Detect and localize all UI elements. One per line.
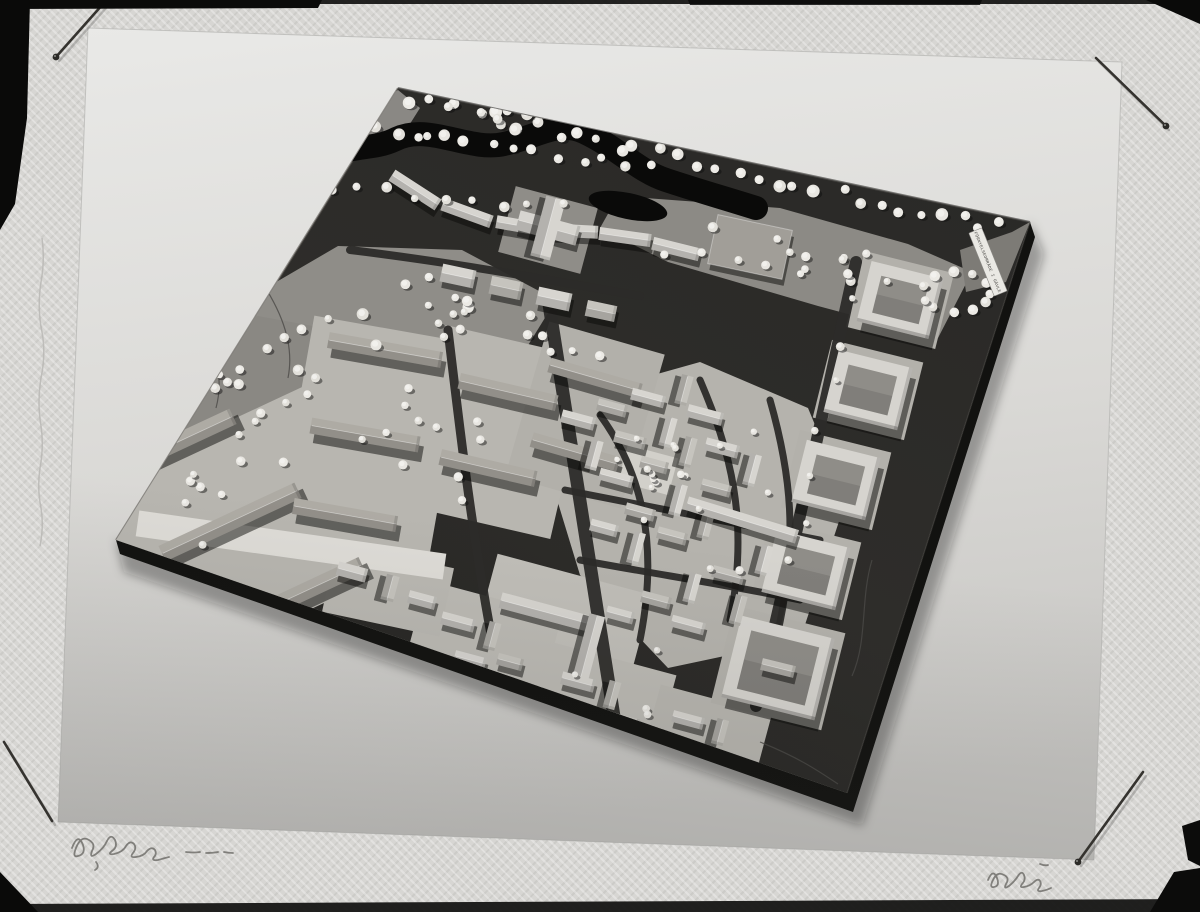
scan-mark [0, 0, 30, 230]
scan-mark [1150, 868, 1200, 912]
pin-head [53, 54, 60, 61]
pin-head-highlight [1164, 124, 1166, 126]
photo-scene: FÖRNYELSEOMRÅDE I GÄVLE [0, 0, 1200, 912]
pin [4, 742, 55, 825]
scan-mark [0, 872, 38, 912]
scan-mark [0, 899, 1200, 912]
deckle-edge [39, 238, 44, 546]
scanned-photograph: FÖRNYELSEOMRÅDE I GÄVLE [0, 0, 1200, 912]
pencil-scribble [988, 873, 1051, 891]
pencil-scribble [186, 852, 233, 853]
scan-mark [1182, 820, 1200, 866]
pencil-scribble [1040, 864, 1048, 865]
scan-mark [688, 0, 982, 5]
pin-head-highlight [54, 55, 56, 57]
pin-head [1163, 123, 1170, 130]
pencil-scribble [72, 837, 169, 860]
mat-details [39, 238, 44, 546]
scan-mark [0, 0, 322, 9]
pin-head-highlight [1076, 860, 1078, 862]
pin-needle [4, 742, 52, 821]
photo-vignette [58, 28, 1122, 860]
pin-head [1075, 859, 1082, 866]
pencil-scribble [95, 862, 98, 870]
